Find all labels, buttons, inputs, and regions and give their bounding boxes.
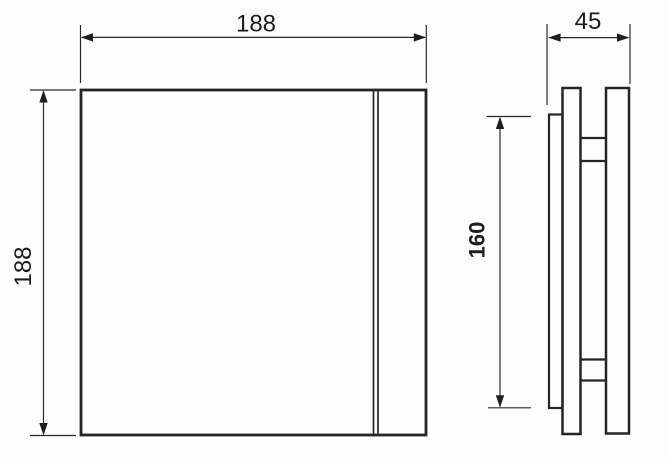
svg-text:45: 45 bbox=[575, 8, 602, 35]
svg-text:188: 188 bbox=[236, 11, 276, 38]
svg-text:188: 188 bbox=[10, 246, 37, 286]
svg-text:160: 160 bbox=[465, 222, 490, 259]
